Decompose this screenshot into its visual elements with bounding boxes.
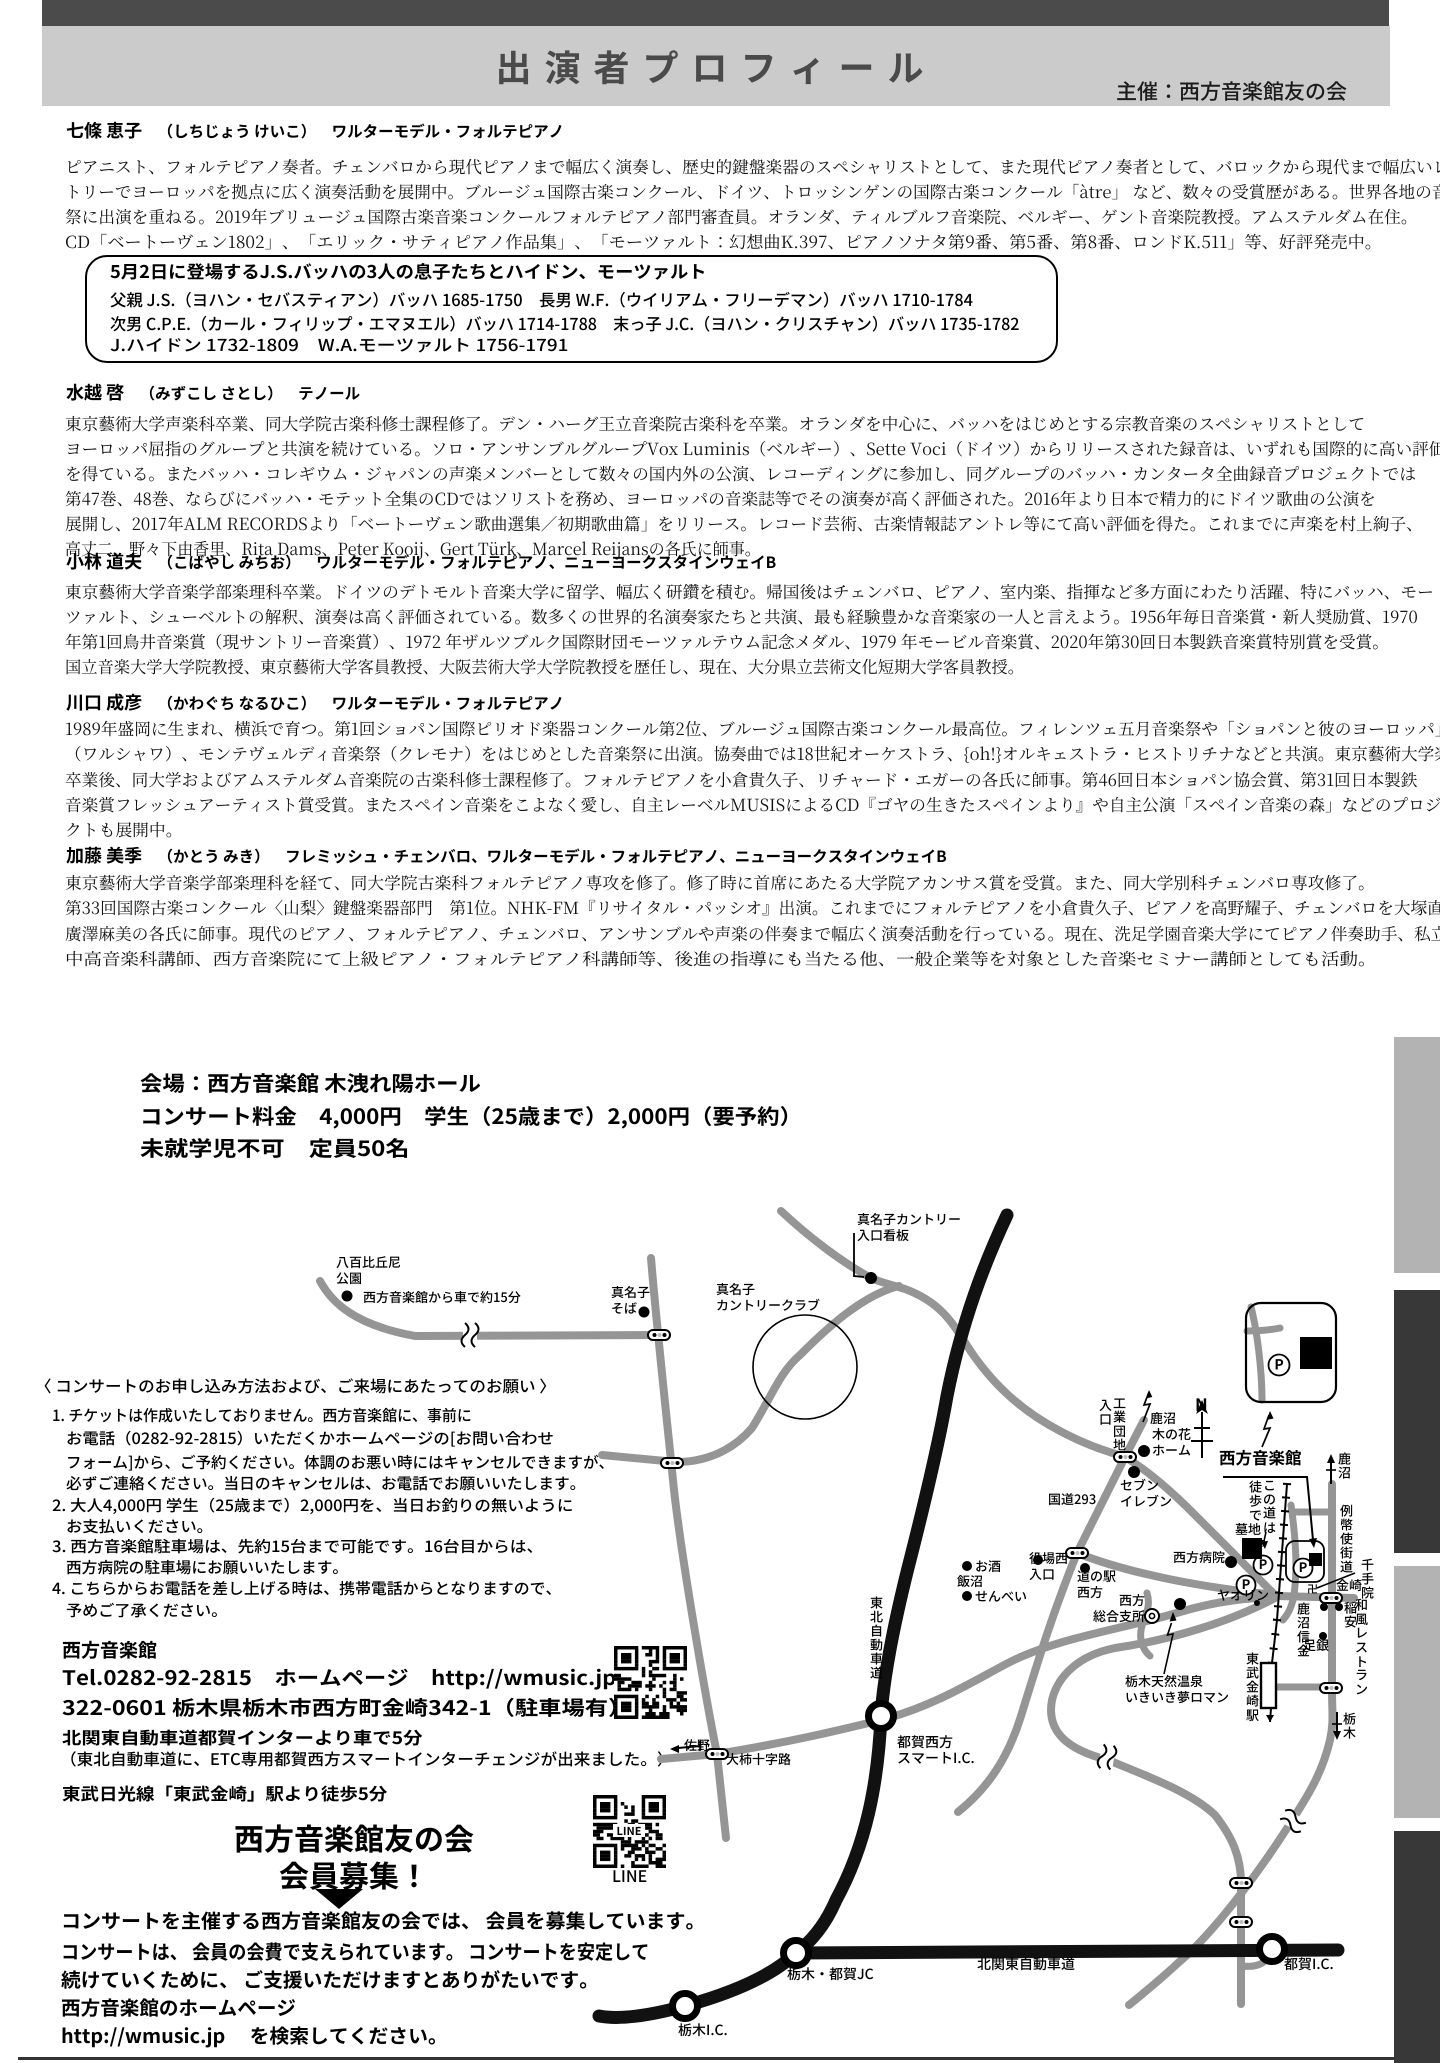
svg-text:卍: 卍	[1307, 1581, 1318, 1597]
svg-text:P: P	[1299, 1557, 1308, 1576]
svg-text:LINE: LINE	[617, 1823, 642, 1839]
svg-text:P: P	[1274, 1354, 1283, 1374]
